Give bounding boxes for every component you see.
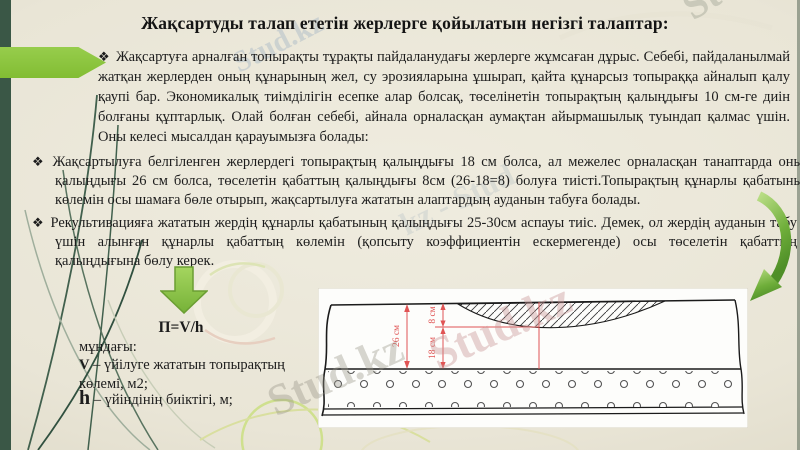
paragraph-1-text: Жақсартуға арналған топырақты тұрақты па… [98, 49, 790, 145]
curved-arrow-icon [737, 190, 797, 310]
paragraph-3-text: Рекультивацияға жататын жердің құнарлы қ… [51, 215, 798, 269]
dimension-label-18cm: 18 см [428, 337, 438, 359]
formula-where-label: мұндағы: [79, 339, 137, 356]
gravel-layer [328, 371, 736, 407]
formula-equation: П=V/h [128, 319, 234, 337]
bullet-icon: ❖ [32, 215, 51, 230]
bullet-icon: ❖ [32, 154, 52, 169]
formula-v-definition: V – үйілуге жататын топырақтың көлемі, м… [79, 356, 309, 393]
green-arrow-down-icon [160, 266, 208, 314]
formula-h-definition: h – үйіндінің биіктігі, м; [79, 391, 233, 409]
formula-v-symbol: V [79, 357, 89, 373]
presentation-slide: Stud.kz Stud kz - Stud Жақсартуды талап … [0, 0, 800, 450]
slide-title: Жақсартуды талап ететін жерлерге қойылат… [20, 13, 790, 34]
paragraph-2: ❖Жақсартылуға белгіленген жерлердегі топ… [32, 152, 800, 211]
formula-v-text: – үйілуге жататын топырақтың көлемі, м2; [79, 357, 285, 392]
paragraph-1: ❖Жақсартуға арналған топырақты тұрақты п… [98, 47, 790, 147]
bullet-icon: ❖ [98, 49, 116, 64]
paragraph-3: ❖Рекультивацияға жататын жердің құнарлы … [32, 213, 797, 272]
dimension-label-8cm: 8 см [428, 306, 438, 323]
formula-h-symbol: h [79, 387, 90, 409]
formula-h-text: – үйіндінің биіктігі, м; [90, 392, 233, 408]
paragraph-2-text: Жақсартылуға белгіленген жерлердегі топы… [52, 154, 800, 208]
soil-cross-section-diagram: 26 см 8 см 18 см [318, 288, 748, 428]
dimension-label-26cm: 26 см [392, 325, 402, 347]
